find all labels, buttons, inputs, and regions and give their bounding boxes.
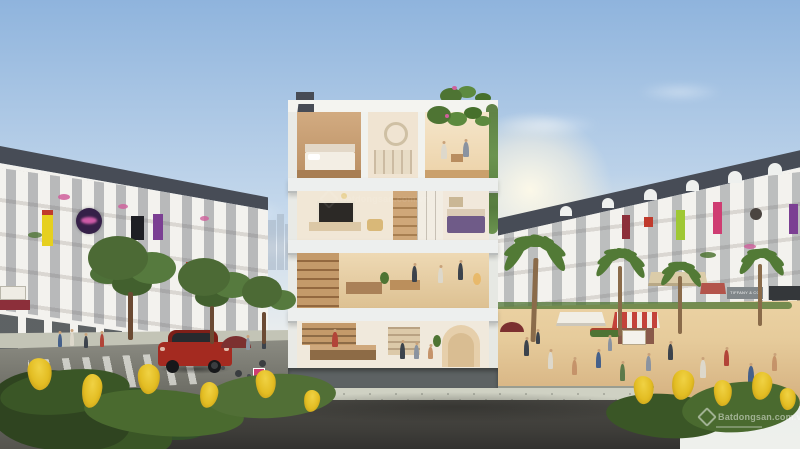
bed-headboard <box>305 144 355 152</box>
terrace-floor <box>425 170 489 178</box>
roof-dormer <box>686 180 699 191</box>
flower-dot <box>452 86 457 90</box>
palm-tree <box>586 240 656 336</box>
banner-green <box>676 210 685 240</box>
arch-inner <box>448 333 474 367</box>
pillow <box>308 154 320 160</box>
shop-sign-violet <box>153 214 163 240</box>
barista <box>332 332 338 347</box>
palm-tree <box>730 240 792 326</box>
cafe-customer <box>428 347 433 359</box>
wall-art <box>449 197 463 207</box>
floor2-studio <box>297 253 489 308</box>
wood-floor <box>297 170 361 178</box>
sign-round-dark <box>750 208 762 220</box>
bed-headboard <box>447 209 485 216</box>
wall-wreath <box>384 122 408 146</box>
wall-divider <box>418 112 425 178</box>
pedestrian <box>572 360 577 375</box>
sign-red-square <box>644 217 653 227</box>
palm-trunk <box>678 276 682 334</box>
skyline-tower <box>277 214 284 270</box>
potted-plant <box>380 272 389 284</box>
office-person <box>458 263 463 280</box>
shop-sign-black <box>131 216 144 240</box>
pedestrian <box>100 334 104 347</box>
wall-divider <box>361 112 368 178</box>
purple-bed <box>447 216 485 233</box>
floor3-bedroom <box>443 191 489 240</box>
shop-awning-red <box>0 300 30 310</box>
roof-dormer <box>728 171 742 183</box>
terrace-person <box>441 144 447 159</box>
balcony-planter <box>28 232 42 238</box>
yellow-flower-cluster <box>303 389 321 412</box>
palm-tree <box>494 226 578 342</box>
tree-canopy <box>178 258 230 296</box>
pedestrian <box>608 338 612 351</box>
media-console <box>309 222 361 231</box>
pedestrian <box>70 332 74 346</box>
floor4-terrace <box>425 112 489 178</box>
terrace-person <box>463 142 469 157</box>
watermark-subline <box>716 426 762 428</box>
palm-trunk <box>758 264 762 326</box>
roof-dormer <box>644 189 657 200</box>
shop-sign-yellow <box>42 210 53 246</box>
watermark-faint: Batdongsan.com.vn <box>322 192 429 206</box>
pedestrian <box>646 356 651 371</box>
tree-trunk <box>210 306 214 344</box>
banner-magenta <box>713 202 722 234</box>
parapet <box>288 100 498 112</box>
watermark-text: Batdongsan.com.vn <box>718 412 800 422</box>
shop-sign-round-neon <box>76 208 102 234</box>
cafe-customer <box>414 345 419 359</box>
counter <box>346 282 382 294</box>
flower-dot <box>445 114 449 118</box>
altar-cabinet <box>374 150 412 174</box>
potted-plant <box>433 335 441 347</box>
tree-trunk <box>262 312 266 344</box>
batdongsan-logo-icon <box>697 407 717 427</box>
palm-tree <box>652 254 710 334</box>
banner-maroon <box>622 215 630 239</box>
shop-sign-white <box>0 286 26 300</box>
skyline-tower <box>268 220 276 270</box>
office-person <box>412 266 417 282</box>
pedestrian <box>548 352 553 369</box>
tree-canopy <box>88 236 148 280</box>
balcony-flowers <box>118 204 128 209</box>
office-person <box>438 268 443 283</box>
pedestrian <box>84 336 88 348</box>
balcony-flowers <box>58 194 70 200</box>
floor4-altar-room <box>368 112 418 178</box>
pedestrian <box>524 340 529 356</box>
banner-violet <box>789 204 798 234</box>
armchair <box>367 219 383 231</box>
foreground-flowers-left <box>0 356 352 449</box>
backbar-shelves <box>302 323 356 345</box>
architectural-rendering-scene: TIFFANY & CO <box>0 0 800 449</box>
pedestrian <box>668 344 673 360</box>
floor4-bedroom <box>297 112 361 178</box>
neon-script-glow <box>81 217 97 224</box>
watermark: Batdongsan.com.vn <box>700 410 800 428</box>
cafe-customer <box>400 343 405 359</box>
roof-dormer <box>602 198 614 208</box>
cloud <box>620 80 740 104</box>
pedestrian <box>724 350 729 366</box>
tree-trunk <box>128 292 133 340</box>
pedestrian <box>772 356 777 371</box>
shelf-wall <box>297 253 339 308</box>
central-cutaway-building <box>288 96 498 396</box>
roof-dormer <box>560 206 572 216</box>
roof-dormer <box>768 163 782 175</box>
arch-alcove <box>442 325 480 367</box>
watermark-text: Batdongsan.com.vn <box>340 194 429 204</box>
batdongsan-logo-icon <box>319 189 339 209</box>
pedestrian <box>246 338 250 350</box>
balcony-flowers <box>200 216 209 221</box>
pedestrian <box>596 352 601 368</box>
pedestrian <box>58 334 62 347</box>
floor-lamp <box>473 273 481 285</box>
palm-trunk <box>531 258 539 342</box>
tree-canopy <box>242 276 282 308</box>
terrace-table <box>451 154 463 162</box>
car-taillight <box>160 347 165 351</box>
palm-trunk <box>618 266 622 336</box>
